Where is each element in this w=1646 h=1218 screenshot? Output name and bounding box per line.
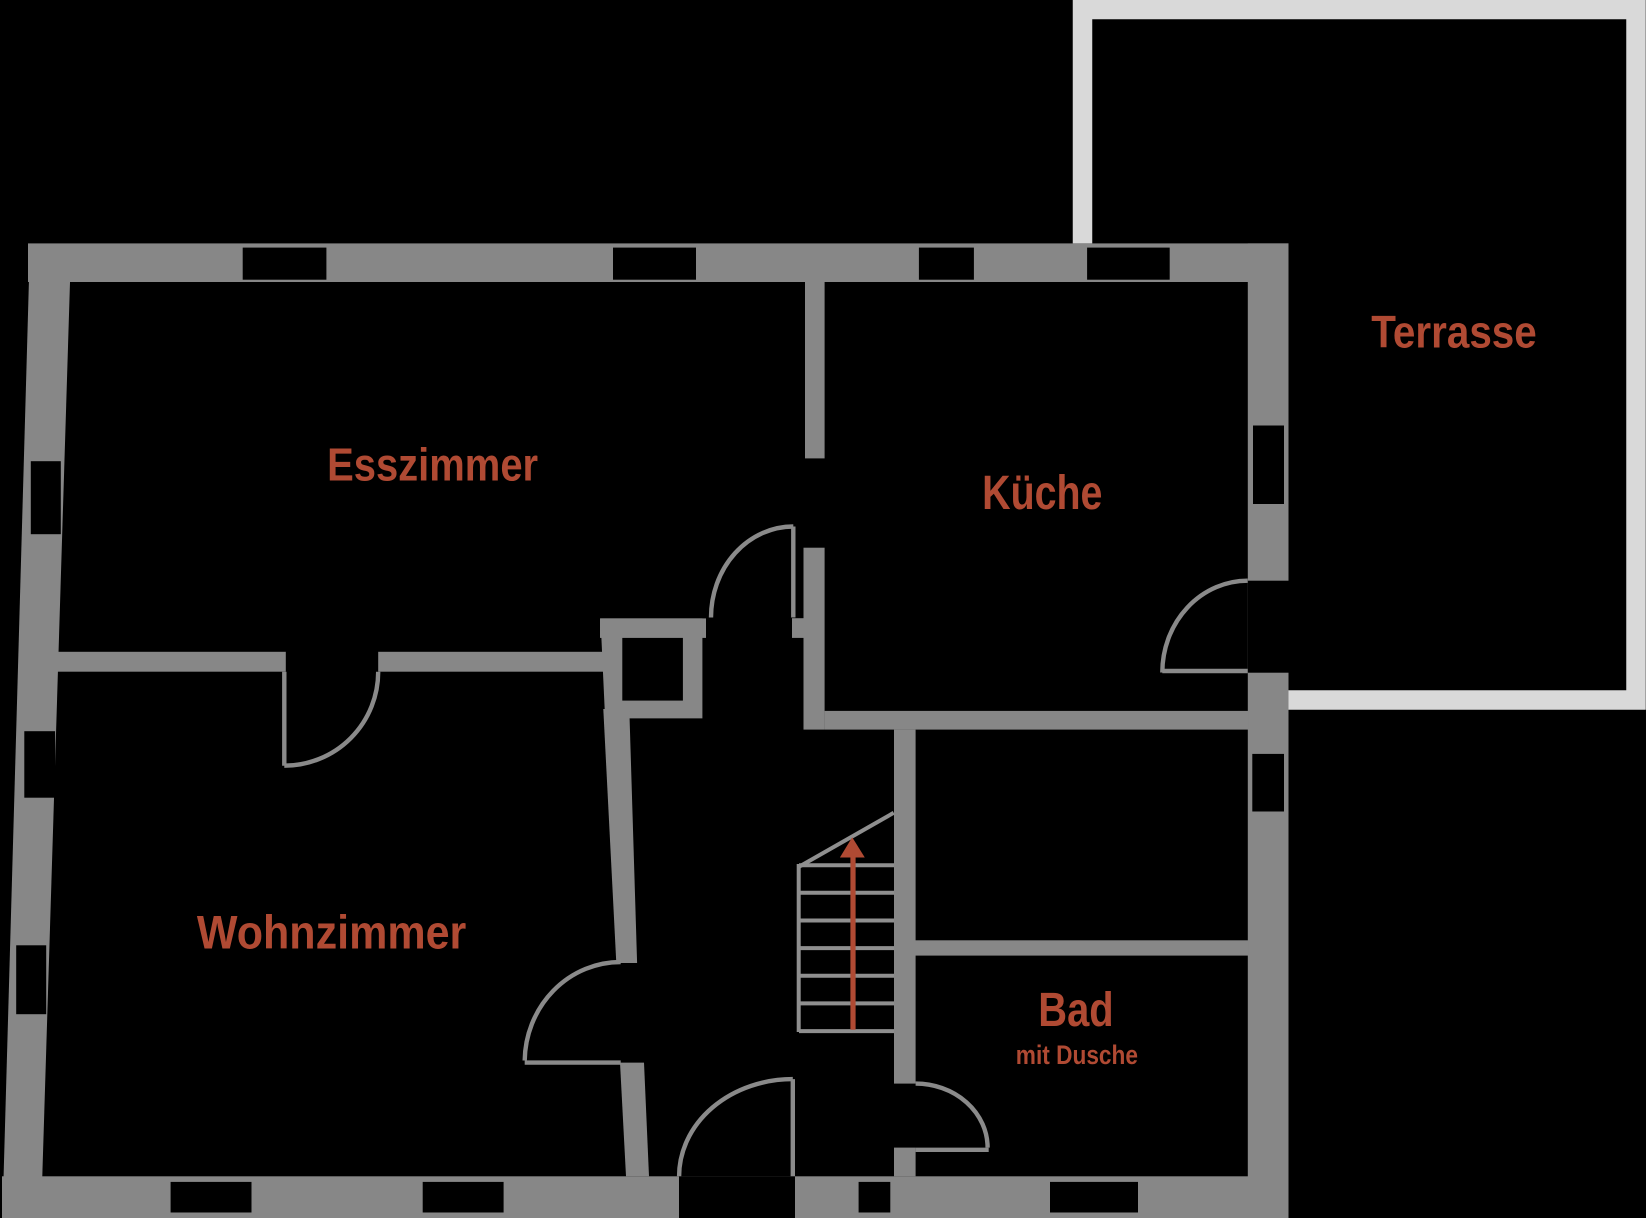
svg-text:Terrasse: Terrasse (1371, 307, 1537, 358)
svg-text:mit Dusche: mit Dusche (1016, 1040, 1138, 1070)
svg-text:Küche: Küche (982, 466, 1102, 520)
svg-text:Esszimmer: Esszimmer (327, 438, 538, 490)
svg-text:Bad: Bad (1038, 983, 1113, 1037)
svg-text:Wohnzimmer: Wohnzimmer (197, 905, 466, 958)
